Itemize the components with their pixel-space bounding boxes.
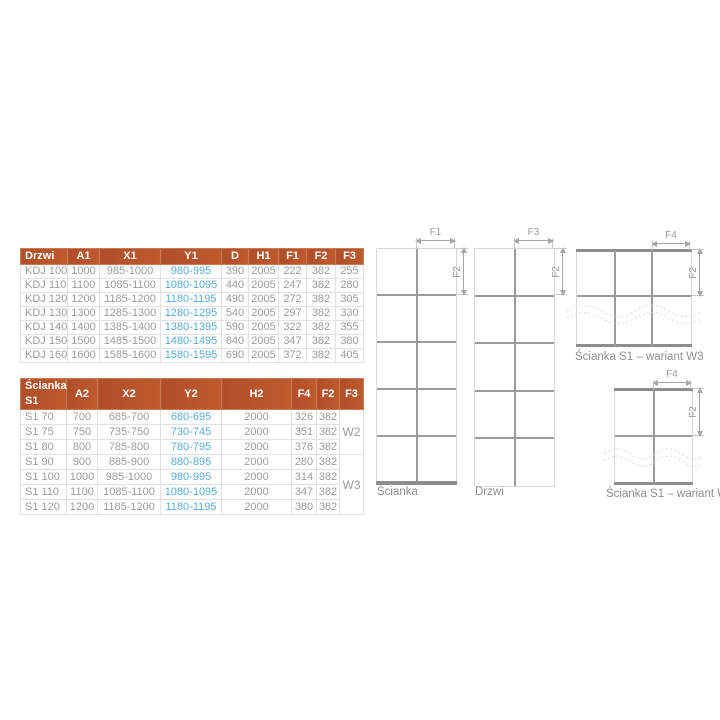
extension-line [454,238,455,249]
value-cell: 2005 [249,265,279,279]
extension-line [456,248,468,249]
grid-line [377,341,456,343]
bottom-profile-bar [376,481,457,485]
extension-line [456,294,468,295]
value-cell: 382 [307,279,336,293]
value-cell: 382 [307,349,336,363]
doors-spec-table: DrzwiA1X1Y1DH1F1F2F3KDJ 1001000985-10009… [20,248,364,363]
row-label-cell: KDJ 140 [21,321,68,335]
value-cell: 985-1000 [100,265,161,279]
column-header: F4 [292,379,317,410]
extension-line [552,238,553,249]
row-label-cell: S1 75 [21,425,67,440]
value-cell: 1080-1095 [161,279,222,293]
column-header: F3 [336,249,364,265]
dim-label-f2: F2 [689,262,699,284]
value-cell: 2005 [249,307,279,321]
value-cell: 1200 [68,293,100,307]
value-cell: 1200 [67,500,98,515]
row-label-cell: S1 100 [21,470,67,485]
value-cell: 382 [317,410,340,425]
extension-line [514,238,515,249]
value-cell: 376 [292,440,317,455]
row-label-cell: KDJ 150 [21,335,68,349]
grid-line [475,437,554,439]
value-cell: 1080-1095 [161,485,222,500]
value-cell: 382 [307,335,336,349]
w2-caption: Ścianka S1 – wariant W2 [606,488,720,500]
value-cell: 1185-1200 [100,293,161,307]
row-label-cell: KDJ 100 [21,265,68,279]
extension-line [416,238,417,249]
grid-line [615,435,692,437]
drzwi-panel-drawing [474,248,555,487]
value-cell: 382 [307,293,336,307]
dim-label-f4: F4 [642,230,700,241]
column-header: D [222,249,249,265]
grid-line [577,295,691,297]
grid-line [377,435,456,437]
value-cell: 785-800 [98,440,161,455]
value-cell: 540 [222,307,249,321]
value-cell: 382 [317,485,340,500]
value-cell: 800 [67,440,98,455]
grid-line [475,342,554,344]
table-row: KDJ 11011001085-11001080-109544020052473… [21,279,364,293]
value-cell: 347 [279,335,307,349]
table-row: KDJ 12012001185-12001180-119549020052723… [21,293,364,307]
value-cell: 985-1000 [98,470,161,485]
value-cell: 1480-1495 [161,335,222,349]
row-label-cell: S1 110 [21,485,67,500]
value-cell: 900 [67,455,98,470]
value-cell: 750 [67,425,98,440]
dim-label-f2: F2 [689,401,699,423]
dim-label-f2: F2 [453,261,463,283]
value-cell: 1585-1600 [100,349,161,363]
value-cell: 980-995 [161,470,222,485]
dim-label-f2: F2 [552,261,562,283]
column-header: Y1 [161,249,222,265]
value-cell: 1000 [68,265,100,279]
top-profile-bar [576,249,692,252]
grid-line [475,390,554,392]
value-cell: 2000 [222,500,292,515]
extension-line [652,241,653,250]
value-cell: 1380-1395 [161,321,222,335]
scianka-panel-drawing [376,248,457,485]
value-cell: 2000 [222,440,292,455]
value-cell: 272 [279,293,307,307]
dimension-f4-w3: F4 [652,243,690,244]
dimension-f2-w3: F2 [699,249,700,296]
value-cell: 1180-1195 [161,500,222,515]
value-cell: 351 [292,425,317,440]
extension-line [554,294,567,295]
table-header-row: Ścianka S1A2X2Y2H2F4F2F3 [21,379,364,410]
table-row: KDJ 14014001385-14001380-139559020053223… [21,321,364,335]
dim-label-f1: F1 [406,227,465,238]
w3-variant-drawing [576,249,692,347]
walls-spec-table: Ścianka S1A2X2Y2H2F4F2F3S1 70700685-7006… [20,378,364,515]
value-cell: 885-900 [98,455,161,470]
scianka-caption: Ścianka [377,486,418,498]
column-header: H1 [249,249,279,265]
table-row: S1 75750735-750730-7452000351382 [21,425,364,440]
column-header: Ścianka S1 [21,379,67,410]
value-cell: 2000 [222,485,292,500]
dimension-f4-w2: F4 [653,382,691,383]
value-cell: 280 [292,455,317,470]
row-label-cell: S1 70 [21,410,67,425]
value-cell: 1100 [67,485,98,500]
column-header: F1 [279,249,307,265]
value-cell: 2000 [222,470,292,485]
column-header: F2 [307,249,336,265]
value-cell: 382 [317,440,340,455]
variant-cell: W2 [340,410,364,455]
value-cell: 322 [279,321,307,335]
value-cell: 382 [317,500,340,515]
value-cell: 2005 [249,335,279,349]
value-cell: 1400 [68,321,100,335]
value-cell: 382 [307,321,336,335]
dimension-f1: F1 [416,240,455,241]
dim-label-f4: F4 [643,369,701,380]
grid-line [614,250,616,346]
value-cell: 390 [222,265,249,279]
column-header: Drzwi [21,249,68,265]
grid-line [475,295,554,297]
spec-sheet-page: { "colors": { "header_bg": "#b5512c", "h… [0,0,720,720]
value-cell: 330 [336,307,364,321]
table-row: S1 80800785-800780-7952000376382 [21,440,364,455]
table-row: KDJ 1001000985-1000980-99539020052223822… [21,265,364,279]
table-row: KDJ 15015001485-15001480-149564020053473… [21,335,364,349]
dimension-f2-scianka: F2 [463,248,464,295]
grid-line [651,250,653,346]
value-cell: 405 [336,349,364,363]
value-cell: 1085-1100 [98,485,161,500]
value-cell: 640 [222,335,249,349]
value-cell: 382 [317,470,340,485]
value-cell: 355 [336,321,364,335]
extension-line [692,388,704,389]
column-header: Y2 [161,379,222,410]
value-cell: 222 [279,265,307,279]
grid-line [416,249,418,484]
value-cell: 2000 [222,455,292,470]
value-cell: 297 [279,307,307,321]
column-header: A2 [67,379,98,410]
dimension-f3: F3 [514,240,553,241]
value-cell: 680-695 [161,410,222,425]
row-label-cell: S1 120 [21,500,67,515]
column-header: F2 [317,379,340,410]
column-header: F3 [340,379,364,410]
value-cell: 690 [222,349,249,363]
value-cell: 326 [292,410,317,425]
extension-line [691,295,704,296]
value-cell: 590 [222,321,249,335]
value-cell: 1600 [68,349,100,363]
row-label-cell: KDJ 110 [21,279,68,293]
value-cell: 490 [222,293,249,307]
extension-line [653,380,654,389]
value-cell: 380 [336,335,364,349]
column-header: A1 [68,249,100,265]
value-cell: 1100 [68,279,100,293]
extension-line [689,241,690,250]
value-cell: 1185-1200 [98,500,161,515]
row-label-cell: S1 90 [21,455,67,470]
variant-cell: W3 [340,455,364,515]
row-label-cell: KDJ 130 [21,307,68,321]
column-header: X2 [98,379,161,410]
extension-line [692,435,704,436]
value-cell: 700 [67,410,98,425]
column-header: H2 [222,379,292,410]
row-label-cell: KDJ 160 [21,349,68,363]
break-wave [567,302,701,330]
value-cell: 2000 [222,410,292,425]
table-row: S1 11011001085-11001080-10952000347382 [21,485,364,500]
value-cell: 980-995 [161,265,222,279]
table-row: S1 1001000985-1000980-9952000314382 [21,470,364,485]
value-cell: 382 [307,265,336,279]
value-cell: 1085-1100 [100,279,161,293]
value-cell: 372 [279,349,307,363]
w2-variant-drawing [614,388,693,485]
table-header-row: DrzwiA1X1Y1DH1F1F2F3 [21,249,364,265]
value-cell: 1280-1295 [161,307,222,321]
value-cell: 2005 [249,279,279,293]
value-cell: 382 [307,307,336,321]
dimension-f2-drzwi: F2 [562,248,563,295]
row-label-cell: S1 80 [21,440,67,455]
value-cell: 880-895 [161,455,222,470]
drzwi-caption: Drzwi [475,486,504,498]
value-cell: 347 [292,485,317,500]
table-row: KDJ 16016001585-16001580-159569020053723… [21,349,364,363]
value-cell: 1000 [67,470,98,485]
value-cell: 382 [317,455,340,470]
value-cell: 314 [292,470,317,485]
value-cell: 440 [222,279,249,293]
value-cell: 2005 [249,321,279,335]
w3-caption: Ścianka S1 – wariant W3 [575,351,703,363]
value-cell: 1485-1500 [100,335,161,349]
dim-label-f3: F3 [504,227,563,238]
table-row: KDJ 13013001285-13001280-129554020052973… [21,307,364,321]
value-cell: 1285-1300 [100,307,161,321]
grid-line [377,388,456,390]
value-cell: 380 [292,500,317,515]
extension-line [554,248,567,249]
column-header: X1 [100,249,161,265]
table-row: S1 90900885-900880-8952000280382W3 [21,455,364,470]
value-cell: 1580-1595 [161,349,222,363]
grid-line [377,294,456,296]
value-cell: 1300 [68,307,100,321]
value-cell: 2005 [249,293,279,307]
value-cell: 280 [336,279,364,293]
table-row: S1 12012001185-12001180-11952000380382 [21,500,364,515]
grid-line [514,249,516,486]
value-cell: 780-795 [161,440,222,455]
table-row: S1 70700685-700680-6952000326382W2 [21,410,364,425]
value-cell: 1385-1400 [100,321,161,335]
value-cell: 247 [279,279,307,293]
extension-line [691,249,704,250]
extension-line [690,380,691,389]
value-cell: 255 [336,265,364,279]
value-cell: 2000 [222,425,292,440]
value-cell: 2005 [249,349,279,363]
value-cell: 305 [336,293,364,307]
value-cell: 1500 [68,335,100,349]
value-cell: 735-750 [98,425,161,440]
row-label-cell: KDJ 120 [21,293,68,307]
value-cell: 685-700 [98,410,161,425]
value-cell: 382 [317,425,340,440]
value-cell: 730-745 [161,425,222,440]
bottom-profile-bar [576,344,692,347]
dimension-f2-w2: F2 [699,388,700,436]
value-cell: 1180-1195 [161,293,222,307]
